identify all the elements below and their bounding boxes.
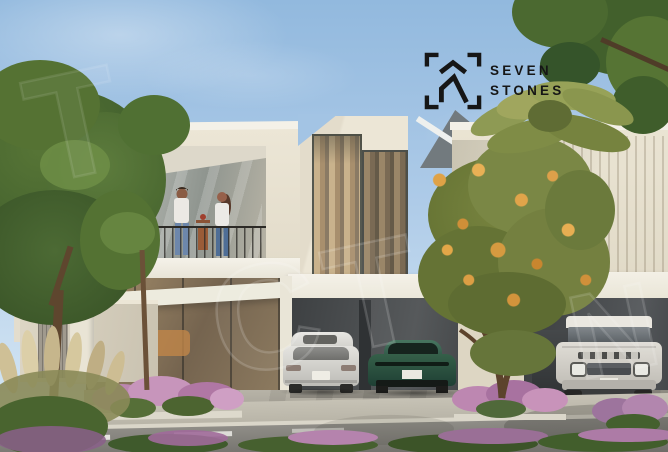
bracket-bottom-right (468, 96, 480, 108)
sedan-sunroof (303, 335, 337, 344)
white-sedan (283, 332, 361, 396)
logo-wordmark: SEVEN STONES (490, 61, 564, 101)
pink-shrub (148, 430, 228, 446)
sedan-rear-window (293, 347, 349, 360)
chevron-icon (440, 63, 465, 73)
bracket-bottom-left (427, 96, 439, 108)
green-shrub (162, 396, 214, 416)
pink-shrub (210, 388, 244, 410)
balcony-table (196, 220, 210, 223)
logo-line2: STONES (490, 81, 564, 101)
suv-headlight (633, 362, 650, 377)
bracket-top-left (427, 55, 439, 67)
house-chevron-icon (441, 77, 466, 102)
bracket-top-right (468, 55, 480, 67)
orange-blossoms (420, 140, 615, 340)
sedan-license-plate (312, 371, 330, 380)
left-tree-canopy (118, 95, 190, 155)
left-tree-highlight (100, 212, 155, 254)
seven-stones-logo: SEVEN STONES (424, 52, 599, 118)
pink-shrub (578, 428, 668, 442)
second-window (362, 150, 408, 284)
man-head (177, 189, 188, 200)
logo-line1: SEVEN (490, 61, 564, 81)
green-car-license-plate (402, 370, 422, 379)
left-tree-highlight (40, 140, 110, 190)
man-shirt (174, 198, 189, 223)
logo-house-icon (424, 52, 482, 110)
sedan-taillight (341, 365, 356, 371)
purple-flowers (0, 426, 106, 452)
sedan-taillight (286, 365, 301, 371)
bottom-flower-strip (108, 428, 668, 452)
sedan-bumper-line (285, 380, 357, 383)
woman-head (217, 192, 227, 202)
pink-shrub (288, 430, 378, 445)
woman-top (215, 203, 229, 226)
sedan-shadow (279, 388, 365, 396)
pink-shrub (438, 428, 548, 444)
window-top-shade (312, 134, 362, 164)
green-shrub (476, 400, 526, 418)
rendering-scene: T CT N SEVEN STONES (0, 0, 668, 452)
